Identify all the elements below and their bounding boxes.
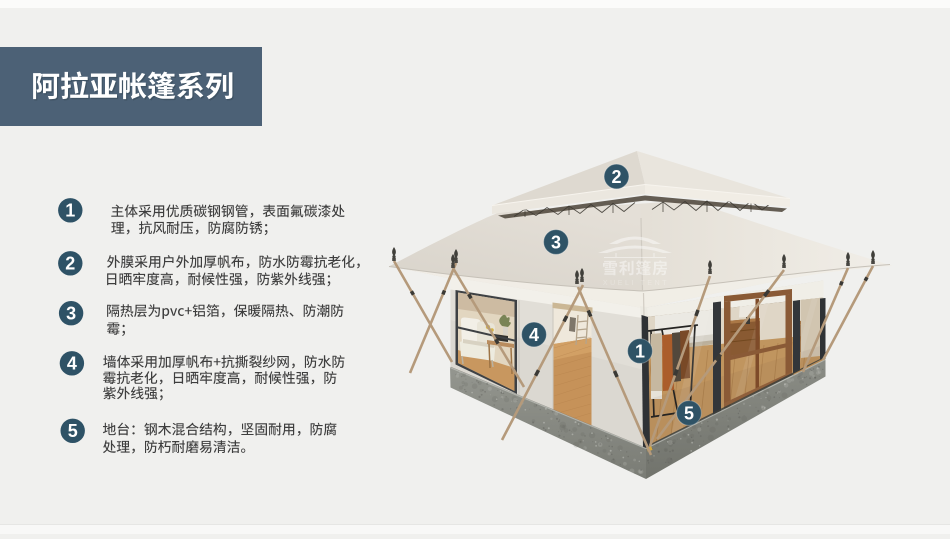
svg-text:5: 5 <box>68 421 78 441</box>
svg-text:2: 2 <box>611 167 621 187</box>
svg-text:3: 3 <box>66 304 76 324</box>
svg-text:1: 1 <box>635 341 645 361</box>
svg-text:2: 2 <box>65 254 75 274</box>
svg-text:4: 4 <box>67 354 77 374</box>
svg-text:3: 3 <box>551 232 561 252</box>
svg-text:XUELI TENT: XUELI TENT <box>603 280 669 287</box>
svg-text:4: 4 <box>529 325 539 345</box>
svg-text:5: 5 <box>684 403 694 423</box>
svg-text:1: 1 <box>65 201 75 221</box>
